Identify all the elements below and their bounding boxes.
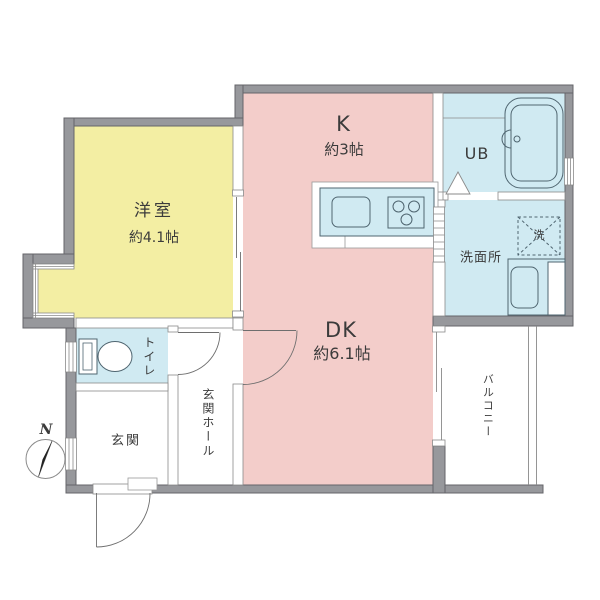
folding-door: [434, 207, 445, 262]
room-label-balcony: バルコニー: [481, 374, 494, 439]
floor-plan-drawing: [0, 0, 600, 600]
balcony-window: [433, 326, 446, 446]
room-size-k: 約3帖: [324, 141, 364, 158]
room-label-yoshitsu: 洋室: [134, 202, 174, 222]
sliding-door: [233, 190, 244, 317]
room-label-ub: UB: [465, 145, 490, 163]
kitchen-sink: [332, 197, 370, 227]
toilet-fixture: [79, 339, 132, 374]
floor-plan: 洋室 約4.1帖 K 約3帖 DK 約6.1帖 UB 洗面所 洗 トイレ 玄関 …: [0, 0, 600, 600]
room-size-yoshitsu: 約4.1帖: [129, 230, 179, 246]
room-label-genkan: 玄関: [111, 435, 141, 450]
kitchen-counter: [312, 182, 438, 248]
room-label-senmenjo: 洗面所: [460, 252, 502, 267]
vanity: [508, 259, 565, 315]
entrance-step: [128, 478, 157, 490]
room-label-dk: DK: [325, 318, 357, 342]
compass: [26, 440, 65, 479]
room-label-toilet: トイレ: [141, 336, 155, 378]
washer-label: 洗: [534, 230, 545, 243]
room-label-k: K: [336, 112, 350, 136]
room-label-genkan-hall: 玄関ホール: [200, 388, 214, 458]
room-size-dk: 約6.1帖: [313, 345, 370, 363]
compass-north-label: N: [40, 422, 53, 438]
balcony-railing: [529, 326, 537, 485]
